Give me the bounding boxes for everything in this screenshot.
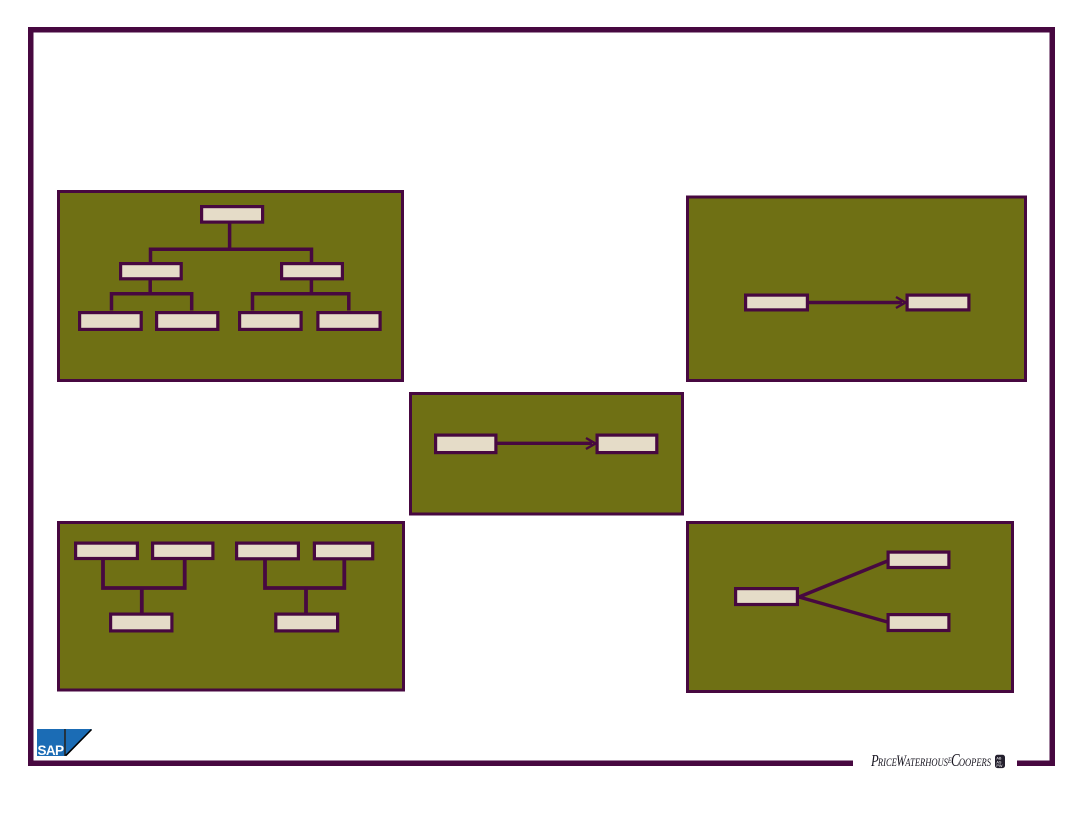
svg-text:PRICEWATERHOUSECOOPERS: PRICEWATERHOUSECOOPERS: [870, 751, 991, 770]
svg-text:SAP: SAP: [38, 743, 65, 758]
svg-text:PW: PW: [996, 764, 1003, 768]
